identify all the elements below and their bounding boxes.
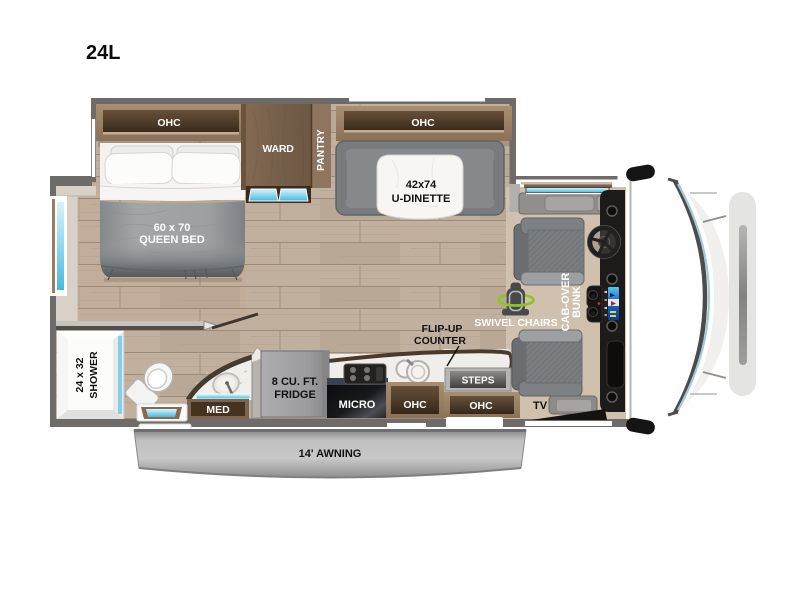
svg-text:OHC: OHC — [469, 400, 493, 412]
svg-text:MICRO: MICRO — [339, 399, 376, 411]
svg-text:8 CU. FT.: 8 CU. FT. — [272, 376, 318, 388]
svg-text:BUNK: BUNK — [571, 286, 583, 318]
svg-text:OHC: OHC — [403, 399, 427, 411]
svg-text:24 x 32: 24 x 32 — [74, 357, 86, 392]
svg-text:OHC: OHC — [411, 117, 435, 129]
svg-text:TV: TV — [533, 400, 548, 412]
svg-text:14' AWNING: 14' AWNING — [299, 448, 362, 460]
svg-text:PANTRY: PANTRY — [316, 129, 327, 171]
svg-text:COUNTER: COUNTER — [414, 335, 466, 347]
svg-text:42x74: 42x74 — [406, 179, 437, 191]
svg-text:FRIDGE: FRIDGE — [274, 389, 316, 401]
svg-text:60 x 70: 60 x 70 — [154, 222, 191, 234]
svg-text:SWIVEL CHAIRS: SWIVEL CHAIRS — [474, 317, 557, 329]
svg-text:MED: MED — [206, 404, 230, 416]
svg-text:QUEEN BED: QUEEN BED — [139, 234, 204, 246]
svg-text:U-DINETTE: U-DINETTE — [392, 193, 451, 205]
svg-text:FLIP-UP: FLIP-UP — [422, 323, 463, 335]
svg-text:OHC: OHC — [157, 117, 181, 129]
svg-text:STEPS: STEPS — [462, 376, 495, 387]
svg-text:WARD: WARD — [262, 143, 294, 155]
svg-text:SHOWER: SHOWER — [88, 351, 100, 399]
svg-text:24L: 24L — [86, 42, 120, 64]
